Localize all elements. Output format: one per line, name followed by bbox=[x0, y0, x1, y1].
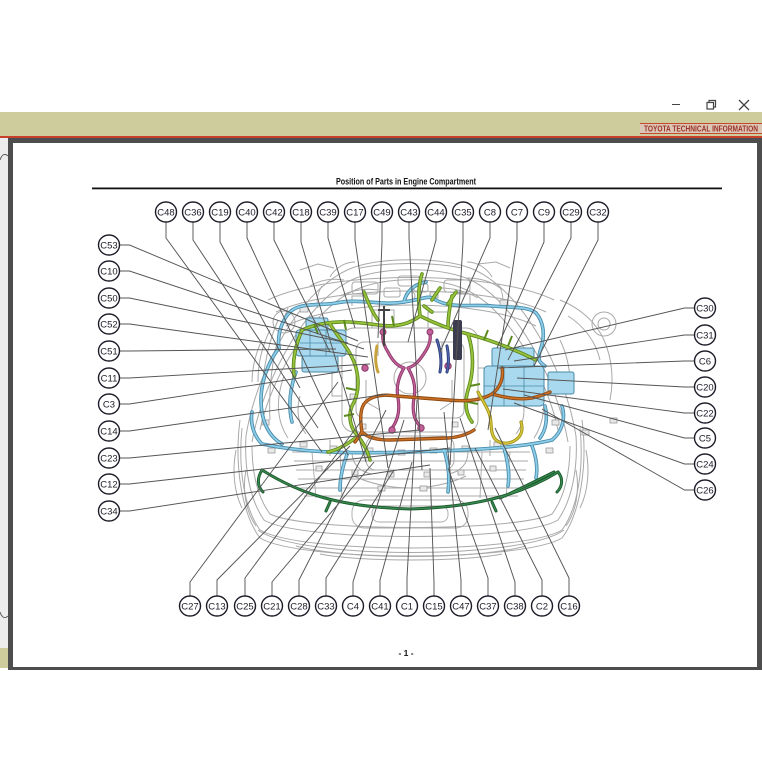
svg-text:C51: C51 bbox=[100, 346, 117, 357]
svg-text:C7: C7 bbox=[511, 207, 523, 218]
svg-text:C22: C22 bbox=[696, 408, 713, 419]
svg-text:C53: C53 bbox=[100, 240, 117, 251]
svg-text:C43: C43 bbox=[400, 207, 417, 218]
svg-text:C28: C28 bbox=[290, 601, 307, 612]
svg-text:C18: C18 bbox=[292, 207, 309, 218]
svg-text:C5: C5 bbox=[699, 433, 711, 444]
svg-text:C32: C32 bbox=[589, 207, 606, 218]
svg-text:C26: C26 bbox=[696, 485, 713, 496]
svg-text:C9: C9 bbox=[538, 207, 550, 218]
svg-text:C35: C35 bbox=[454, 207, 471, 218]
svg-text:C31: C31 bbox=[696, 330, 713, 341]
svg-text:C6: C6 bbox=[699, 356, 711, 367]
svg-text:C41: C41 bbox=[371, 601, 388, 612]
svg-text:C34: C34 bbox=[100, 506, 117, 517]
svg-text:C13: C13 bbox=[208, 601, 225, 612]
svg-text:C47: C47 bbox=[452, 601, 469, 612]
svg-text:C3: C3 bbox=[103, 399, 115, 410]
svg-text:C38: C38 bbox=[506, 601, 523, 612]
svg-text:C16: C16 bbox=[560, 601, 577, 612]
svg-text:C14: C14 bbox=[100, 426, 117, 437]
svg-text:C20: C20 bbox=[696, 382, 713, 393]
svg-text:C12: C12 bbox=[100, 479, 117, 490]
svg-text:C11: C11 bbox=[101, 373, 118, 384]
svg-text:C19: C19 bbox=[211, 207, 228, 218]
svg-text:C17: C17 bbox=[346, 207, 363, 218]
svg-text:C23: C23 bbox=[100, 453, 117, 464]
svg-text:C15: C15 bbox=[425, 601, 442, 612]
svg-text:C29: C29 bbox=[562, 207, 579, 218]
svg-text:C37: C37 bbox=[479, 601, 496, 612]
svg-text:C49: C49 bbox=[373, 207, 390, 218]
svg-text:C21: C21 bbox=[263, 601, 280, 612]
svg-text:C2: C2 bbox=[536, 601, 548, 612]
svg-text:C40: C40 bbox=[238, 207, 255, 218]
svg-text:C1: C1 bbox=[401, 601, 413, 612]
svg-text:C8: C8 bbox=[484, 207, 496, 218]
svg-text:C44: C44 bbox=[427, 207, 444, 218]
svg-text:C48: C48 bbox=[157, 207, 174, 218]
svg-text:Position of Parts in Engine Co: Position of Parts in Engine Compartment bbox=[336, 177, 477, 188]
svg-text:C30: C30 bbox=[696, 303, 713, 314]
svg-text:C25: C25 bbox=[236, 601, 253, 612]
svg-text:C10: C10 bbox=[100, 266, 117, 277]
svg-text:C33: C33 bbox=[317, 601, 334, 612]
svg-text:C27: C27 bbox=[181, 601, 198, 612]
svg-text:C52: C52 bbox=[100, 319, 117, 330]
svg-text:- 1 -: - 1 - bbox=[398, 648, 413, 658]
svg-text:C42: C42 bbox=[265, 207, 282, 218]
svg-text:C39: C39 bbox=[319, 207, 336, 218]
svg-text:C24: C24 bbox=[696, 459, 713, 470]
svg-text:C36: C36 bbox=[184, 207, 201, 218]
svg-text:C50: C50 bbox=[100, 293, 117, 304]
svg-text:C4: C4 bbox=[347, 601, 359, 612]
